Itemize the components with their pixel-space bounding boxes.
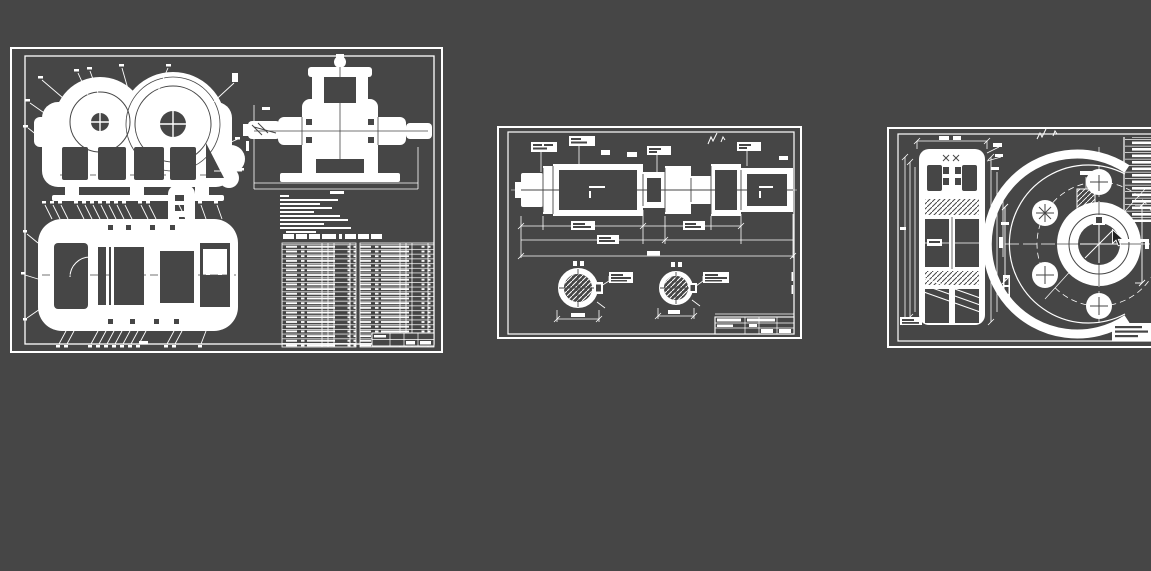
top-section-view (21, 201, 238, 348)
assembly-drawing-sheet[interactable] (10, 47, 443, 353)
cross-section-right (655, 262, 729, 319)
shaft-drawing-graphic (497, 126, 802, 339)
bom-header-band (283, 234, 382, 239)
cad-canvas (0, 0, 1151, 571)
shaft-drawing-sheet[interactable] (497, 126, 802, 339)
front-section-view (23, 64, 245, 201)
note-block (1112, 323, 1151, 341)
gear-axial-section-view (900, 136, 1010, 325)
assembly-drawing-graphic (10, 47, 443, 353)
cross-section-left (554, 261, 633, 322)
margin-marks (792, 272, 794, 294)
side-elevation-view (243, 54, 432, 194)
surface-finish-icon (708, 133, 725, 144)
title-block (372, 333, 434, 346)
shaft-main-view (511, 164, 797, 216)
mouse-cursor-icon (1112, 229, 1124, 247)
title-block (715, 314, 794, 334)
bom-table (282, 234, 434, 347)
